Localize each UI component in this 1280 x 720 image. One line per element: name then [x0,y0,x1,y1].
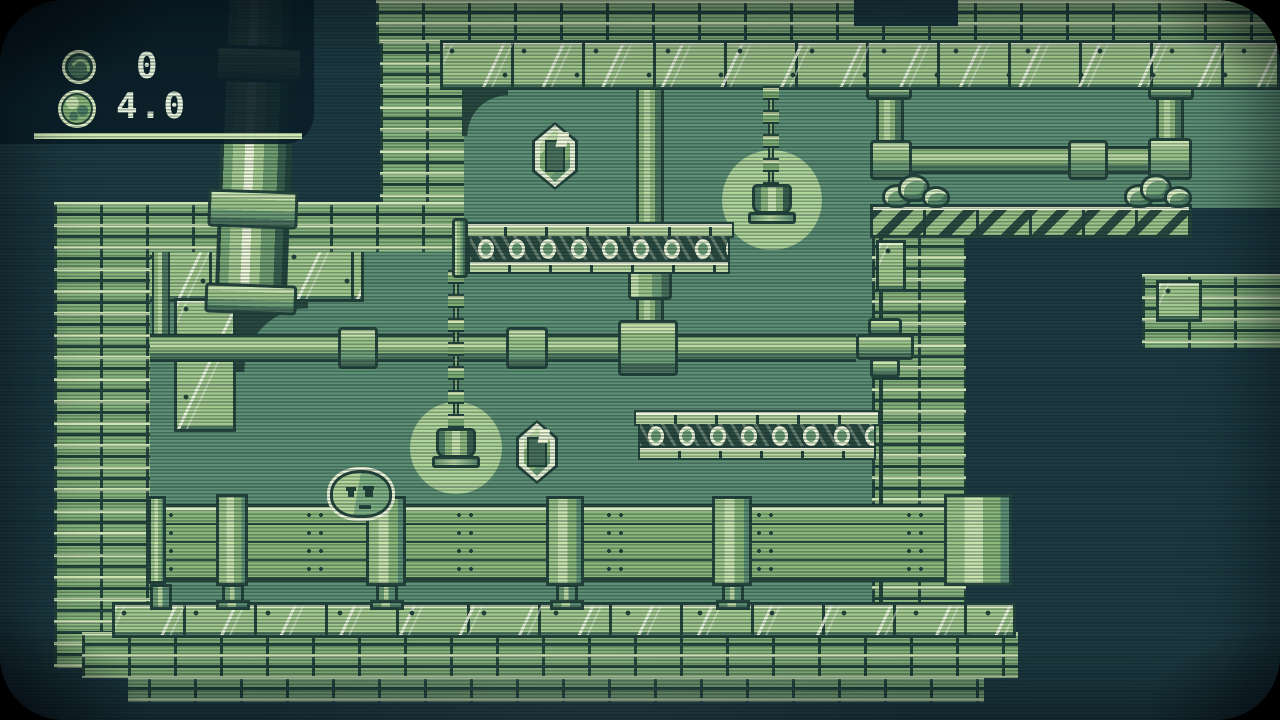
fence-board [148,496,166,584]
fence-board [546,496,584,586]
roller-belt [638,424,876,448]
coin-count: 0 [136,46,160,87]
ceiling-notch-void [854,0,958,26]
roller-bracket [452,218,468,278]
wall-rod [879,237,883,645]
right-wall-bricks [872,234,966,658]
coin-icon [62,50,96,84]
floor-bricks-lower [128,676,984,702]
lantern-base [432,456,480,468]
hatched-girder-platform [870,204,1192,238]
chain [763,86,779,186]
ceiling-bricks [376,0,1280,44]
lantern-base [748,212,796,224]
roller-rail-bottom [638,446,876,460]
hanging-lantern [752,184,792,214]
gauge-value: 4.0 [116,86,187,127]
pipe-t-junction [618,320,678,376]
right-ledge-plate [1156,280,1202,322]
pipe-vertical-thin [152,252,170,340]
roller-belt [468,236,730,262]
ceiling-beam [440,40,1280,90]
fence-pillar-base [550,600,584,610]
moss-ball-icon [58,90,96,128]
roller-rail-bottom [468,260,730,274]
large-pipe-coupling [207,188,298,229]
pipe-wall-flange [870,358,900,378]
chain [448,270,464,430]
floor-bricks [82,632,1018,678]
fence-pillar [150,584,172,610]
pipe-horizontal-main [88,334,856,362]
pipe-coupling [506,327,548,369]
hanging-lantern [436,428,476,458]
fence-board [216,494,248,586]
fence-board [944,494,1012,586]
fence-pillar-base [216,600,250,610]
pipe-wall-flange [856,334,914,360]
hud-underline [34,133,302,139]
bush [882,174,950,208]
fence-pillar-base [370,600,404,610]
fence-board [712,496,752,586]
bush [1124,174,1192,208]
large-pipe-flange [204,282,297,315]
blob-character [330,470,392,518]
pipe-coupling [1068,140,1108,180]
pipe-horizontal-right [886,146,1178,174]
corner-fillet [462,90,508,136]
left-wall-bricks [54,202,150,668]
fence-pillar-base [716,600,750,610]
game-screen[interactable]: 0 4.0 [0,0,1280,720]
pipe-coupling [338,327,378,369]
right-wall-plate [876,240,906,292]
